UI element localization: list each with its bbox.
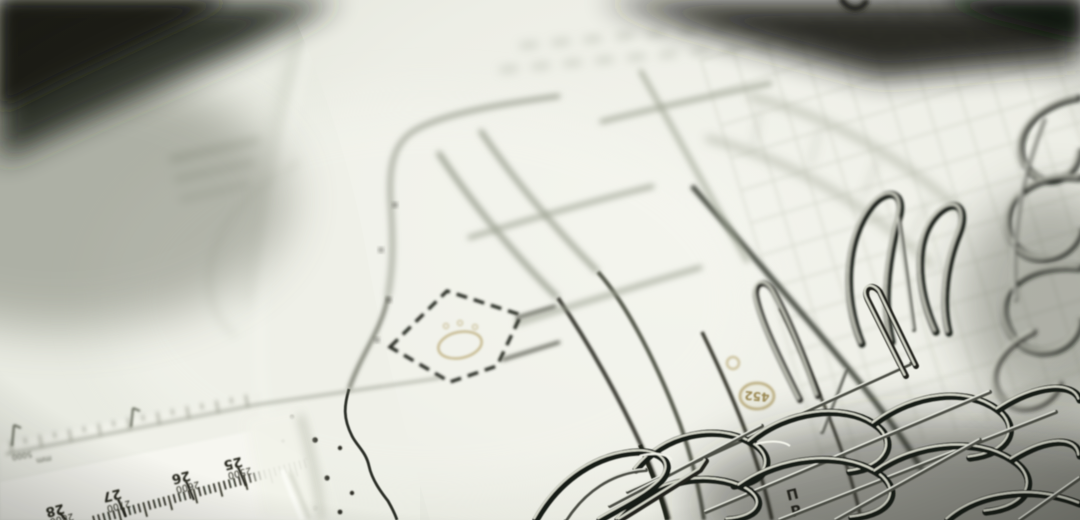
vignette-overlay [0, 0, 1080, 520]
photo-canvas: 452 Π P 5000 mm 28 2800 27 2700 26 [0, 0, 1080, 520]
photo-of-blueprints-and-clips: 452 Π P 5000 mm 28 2800 27 2700 26 [0, 0, 1080, 520]
